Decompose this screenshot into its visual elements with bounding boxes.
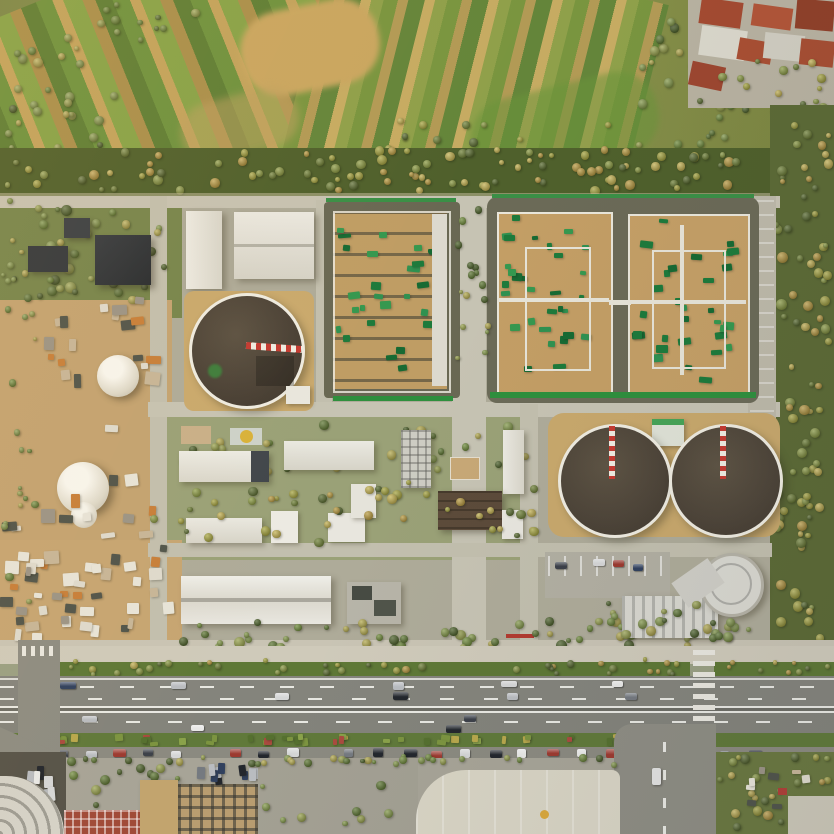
soft-shadow-overlay [0, 0, 834, 834]
aerial-photo-wastewater-plant [0, 0, 834, 834]
